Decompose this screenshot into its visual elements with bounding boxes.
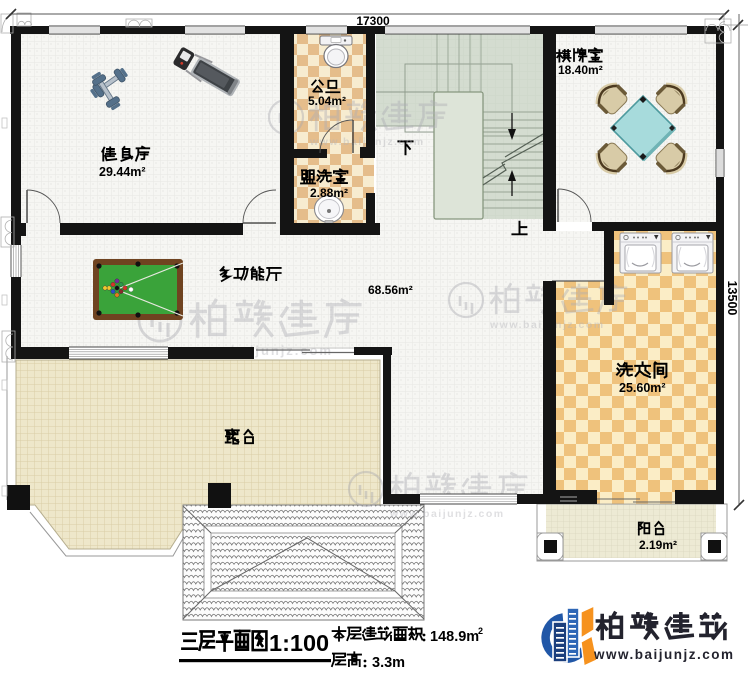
svg-text:2: 2 [478, 626, 483, 636]
svg-text:5.04m²: 5.04m² [308, 94, 346, 108]
svg-text:3.3m: 3.3m [372, 655, 405, 671]
svg-text:25.60m²: 25.60m² [619, 381, 666, 395]
svg-text:2.88m²: 2.88m² [310, 186, 348, 200]
svg-text:17300: 17300 [356, 14, 390, 28]
svg-text:www.baijunjz.com: www.baijunjz.com [389, 508, 505, 520]
svg-text:13500: 13500 [725, 281, 739, 316]
svg-text:148.9m: 148.9m [430, 629, 479, 645]
svg-text:www.baijunjz.com: www.baijunjz.com [593, 647, 735, 662]
svg-text:18.40m²: 18.40m² [558, 63, 603, 77]
svg-text:29.44m²: 29.44m² [99, 165, 146, 179]
svg-text:68.56m²: 68.56m² [368, 283, 413, 297]
svg-text:2.19m²: 2.19m² [639, 538, 677, 552]
svg-text:1:100: 1:100 [269, 630, 329, 656]
